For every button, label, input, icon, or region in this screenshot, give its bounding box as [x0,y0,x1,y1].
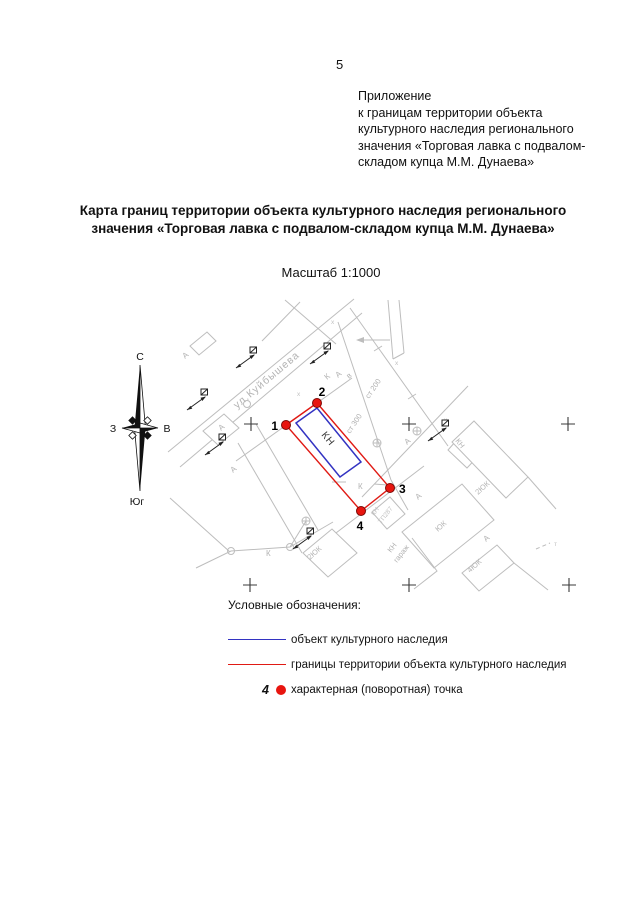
point-number-1: 1 [271,419,278,433]
compass-east-label: В [163,423,170,435]
svg-text:К: К [358,482,363,491]
red-point-symbol [276,685,286,695]
svg-text:х: х [331,319,335,326]
building-label-2yuk-tr: 2ЮК [473,479,491,497]
legend-point-number: 4 [262,683,269,697]
legend-item-boundary: границы территории объекта культурного н… [228,652,566,677]
legend: Условные обозначения: объект культурного… [228,598,566,702]
legend-heading: Условные обозначения: [228,598,566,612]
street-name-label: ул.Куйбышева [231,349,302,411]
svg-text:А: А [482,533,492,544]
line-label-st200: ст 200 [363,377,383,400]
point-marker-1 [282,421,291,430]
point-marker-4 [357,507,366,516]
compass-west-label: З [110,423,116,435]
svg-text:К: К [266,549,271,558]
legend-item-label: границы территории объекта культурного н… [291,659,566,671]
legend-item-object: объект культурного наследия [228,627,566,652]
svg-text:К: К [323,371,333,381]
svg-text:в: в [345,371,354,381]
surface-letters: А А А А А А А К в К К х х х х т [181,319,557,558]
compass-rose: С Юг З В [110,351,171,508]
cadastral-linework [168,299,556,591]
svg-text:А: А [414,491,424,502]
svg-text:т: т [554,541,557,548]
legend-item-label: объект культурного наследия [291,634,448,646]
svg-text:А: А [181,350,191,361]
point-number-4: 4 [357,519,364,533]
point-marker-3 [386,484,395,493]
boundary-map: С Юг З В [0,0,640,905]
document-page: 5 Приложение к границам территории объек… [0,0,640,905]
svg-text:А: А [334,369,344,380]
compass-south-label: Юг [130,496,145,508]
svg-text:х: х [297,391,301,398]
legend-item-label: характерная (поворотная) точка [291,684,463,696]
blue-line-symbol [228,639,286,640]
point-number-3: 3 [399,482,406,496]
svg-text:А: А [229,464,239,475]
point-number-2: 2 [319,385,326,399]
line-label-st300: ст 300 [344,412,364,435]
svg-text:х: х [395,360,399,367]
red-line-symbol [228,664,286,665]
legend-item-point: 4 характерная (поворотная) точка [228,677,566,702]
point-marker-2 [313,399,322,408]
compass-north-label: С [136,351,144,363]
